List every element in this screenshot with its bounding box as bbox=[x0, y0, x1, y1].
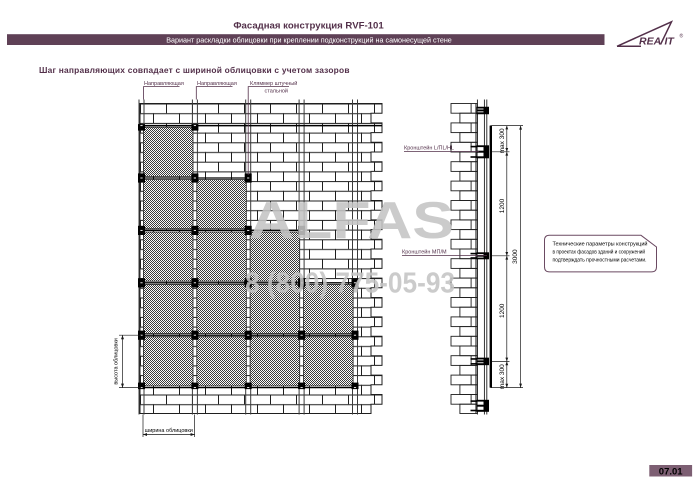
svg-text:1200: 1200 bbox=[499, 303, 506, 318]
svg-text:Направляющая: Направляющая bbox=[197, 81, 237, 87]
svg-text:Кляммер штучный: Кляммер штучный bbox=[250, 80, 297, 87]
svg-text:REA: REA bbox=[639, 36, 661, 48]
svg-text:07.01: 07.01 bbox=[659, 467, 683, 478]
svg-text:8 (800) 775-05-93: 8 (800) 775-05-93 bbox=[245, 268, 455, 300]
svg-text:Фасадная конструкция RVF-101: Фасадная конструкция RVF-101 bbox=[233, 21, 384, 32]
svg-text:подтверждать прочностными расч: подтверждать прочностными расчетами. bbox=[553, 258, 647, 264]
svg-text:Направляющая: Направляющая bbox=[144, 81, 184, 87]
svg-text:Кронштейн L/ПL/НL: Кронштейн L/ПL/НL bbox=[404, 145, 454, 152]
svg-text:IT: IT bbox=[665, 36, 676, 48]
svg-text:стальной: стальной bbox=[264, 88, 288, 95]
svg-text:ширина облицовки: ширина облицовки bbox=[145, 428, 193, 434]
svg-text:®: ® bbox=[680, 33, 684, 40]
svg-text:3000: 3000 bbox=[512, 249, 519, 264]
svg-text:высота облицовки: высота облицовки bbox=[114, 338, 120, 384]
svg-text:1200: 1200 bbox=[499, 198, 506, 213]
svg-text:Вариант раскладки облицовки пр: Вариант раскладки облицовки при креплени… bbox=[166, 36, 452, 45]
svg-text:max 300: max 300 bbox=[499, 364, 506, 389]
svg-text:ALFAS: ALFAS bbox=[249, 192, 454, 250]
svg-text:в проектах фасадов зданий и со: в проектах фасадов зданий и сооружений bbox=[553, 249, 646, 256]
svg-text:Шаг направляющих совпадает с ш: Шаг направляющих совпадает с шириной обл… bbox=[39, 65, 350, 75]
svg-text:Технические параметры конструк: Технические параметры конструкций bbox=[553, 241, 648, 248]
svg-text:max 300: max 300 bbox=[499, 128, 506, 153]
